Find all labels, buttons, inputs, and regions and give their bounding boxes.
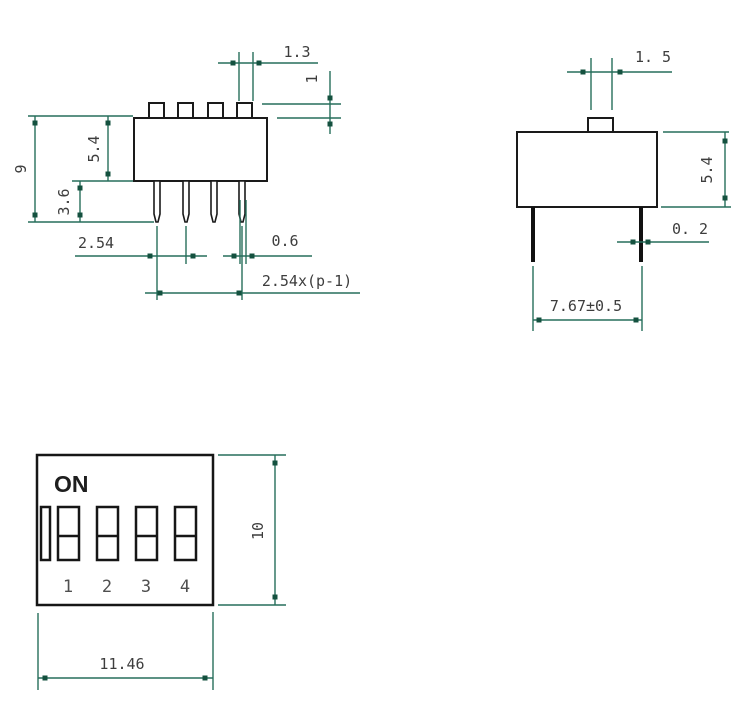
dim-label-actuator-width: 1.3: [283, 43, 310, 61]
dimension-pin-spacing: 7.67±0.5: [533, 266, 642, 331]
dimension-pitch-span: 2.54x(p-1): [145, 226, 360, 300]
dimension-side-body-height: 5.4: [661, 132, 731, 207]
position-label-4: 4: [180, 577, 190, 597]
dim-label-pin-thickness: 0. 2: [672, 220, 708, 238]
dimension-actuator-height: 1: [262, 71, 341, 134]
dim-label-total-height: 9: [12, 164, 30, 173]
front-pin-3: [211, 181, 217, 222]
dim-label-body-height: 5.4: [85, 135, 103, 162]
arrow-icon: [231, 61, 236, 66]
dimension-pin-pitch: 2.54: [75, 226, 207, 300]
dimension-top-body-width: 11.46: [38, 612, 213, 690]
position-label-1: 1: [63, 577, 73, 597]
dimension-pin-thickness: 0. 2: [617, 220, 709, 245]
front-tab-1: [149, 103, 164, 118]
dimension-pin-length: 3.6: [55, 181, 83, 222]
arrow-icon: [33, 213, 38, 218]
dim-label-top-body-width: 11.46: [99, 655, 144, 673]
arrow-icon: [148, 254, 153, 259]
dim-label-actuator-height: 1: [303, 74, 321, 83]
arrow-icon: [78, 213, 83, 218]
arrow-icon: [646, 240, 651, 245]
side-body: [517, 132, 657, 207]
dim-label-pin-length: 3.6: [55, 188, 73, 215]
dim-label-side-actuator-width: 1. 5: [635, 48, 671, 66]
front-tab-3: [208, 103, 223, 118]
front-tab-4: [237, 103, 252, 118]
side-actuator-tab: [588, 118, 613, 132]
front-pins: [154, 181, 245, 222]
switch-2: [97, 507, 118, 560]
dim-label-pitch-span: 2.54x(p-1): [262, 272, 352, 290]
front-pin-1: [154, 181, 160, 222]
dimension-front-body-height: 5.4: [72, 116, 133, 181]
arrow-icon: [618, 70, 623, 75]
dimension-total-height: 9: [12, 116, 154, 222]
arrow-icon: [106, 121, 111, 126]
switch-1: [58, 507, 79, 560]
on-label: ON: [54, 471, 89, 497]
dimension-top-body-height: 10: [218, 455, 286, 605]
arrow-icon: [537, 318, 542, 323]
arrow-icon: [191, 254, 196, 259]
front-pin-2: [183, 181, 189, 222]
arrow-icon: [581, 70, 586, 75]
arrow-icon: [78, 186, 83, 191]
switch-4: [175, 507, 196, 560]
arrow-icon: [723, 196, 728, 201]
dim-label-pin-spacing: 7.67±0.5: [550, 297, 622, 315]
front-actuator-tabs: [149, 103, 252, 118]
dim-label-top-body-height: 10: [249, 522, 267, 540]
arrow-icon: [43, 676, 48, 681]
switch-3: [136, 507, 157, 560]
dim-label-side-body-height: 5.4: [698, 156, 716, 183]
dim-label-pin-width: 0.6: [271, 232, 298, 250]
arrow-icon: [273, 461, 278, 466]
dimension-actuator-width: 1.3: [218, 43, 318, 101]
arrow-icon: [328, 122, 333, 127]
dim-label-pin-pitch: 2.54: [78, 234, 114, 252]
arrow-icon: [203, 676, 208, 681]
front-view: 9 5.4 3.6 1.3: [12, 43, 360, 300]
arrow-icon: [158, 291, 163, 296]
edge-slot: [41, 507, 50, 560]
drawing-sheet: 9 5.4 3.6 1.3: [0, 0, 750, 727]
dimension-side-actuator-width: 1. 5: [567, 48, 672, 110]
arrow-icon: [232, 254, 237, 259]
arrow-icon: [328, 96, 333, 101]
side-view: 1. 5 5.4 0. 2 7.67±0.5: [517, 48, 731, 331]
arrow-icon: [723, 139, 728, 144]
arrow-icon: [33, 121, 38, 126]
arrow-icon: [250, 254, 255, 259]
arrow-icon: [257, 61, 262, 66]
arrow-icon: [273, 595, 278, 600]
arrow-icon: [634, 318, 639, 323]
arrow-icon: [237, 291, 242, 296]
arrow-icon: [106, 172, 111, 177]
position-label-3: 3: [141, 577, 151, 597]
top-view: ON 1 2 3 4 10: [37, 455, 286, 690]
position-label-2: 2: [102, 577, 112, 597]
front-tab-2: [178, 103, 193, 118]
side-pins: [533, 207, 641, 262]
arrow-icon: [631, 240, 636, 245]
front-body: [134, 118, 267, 181]
dimension-pin-width: 0.6: [223, 200, 312, 264]
dip-switch-drawing: 9 5.4 3.6 1.3: [0, 0, 750, 727]
